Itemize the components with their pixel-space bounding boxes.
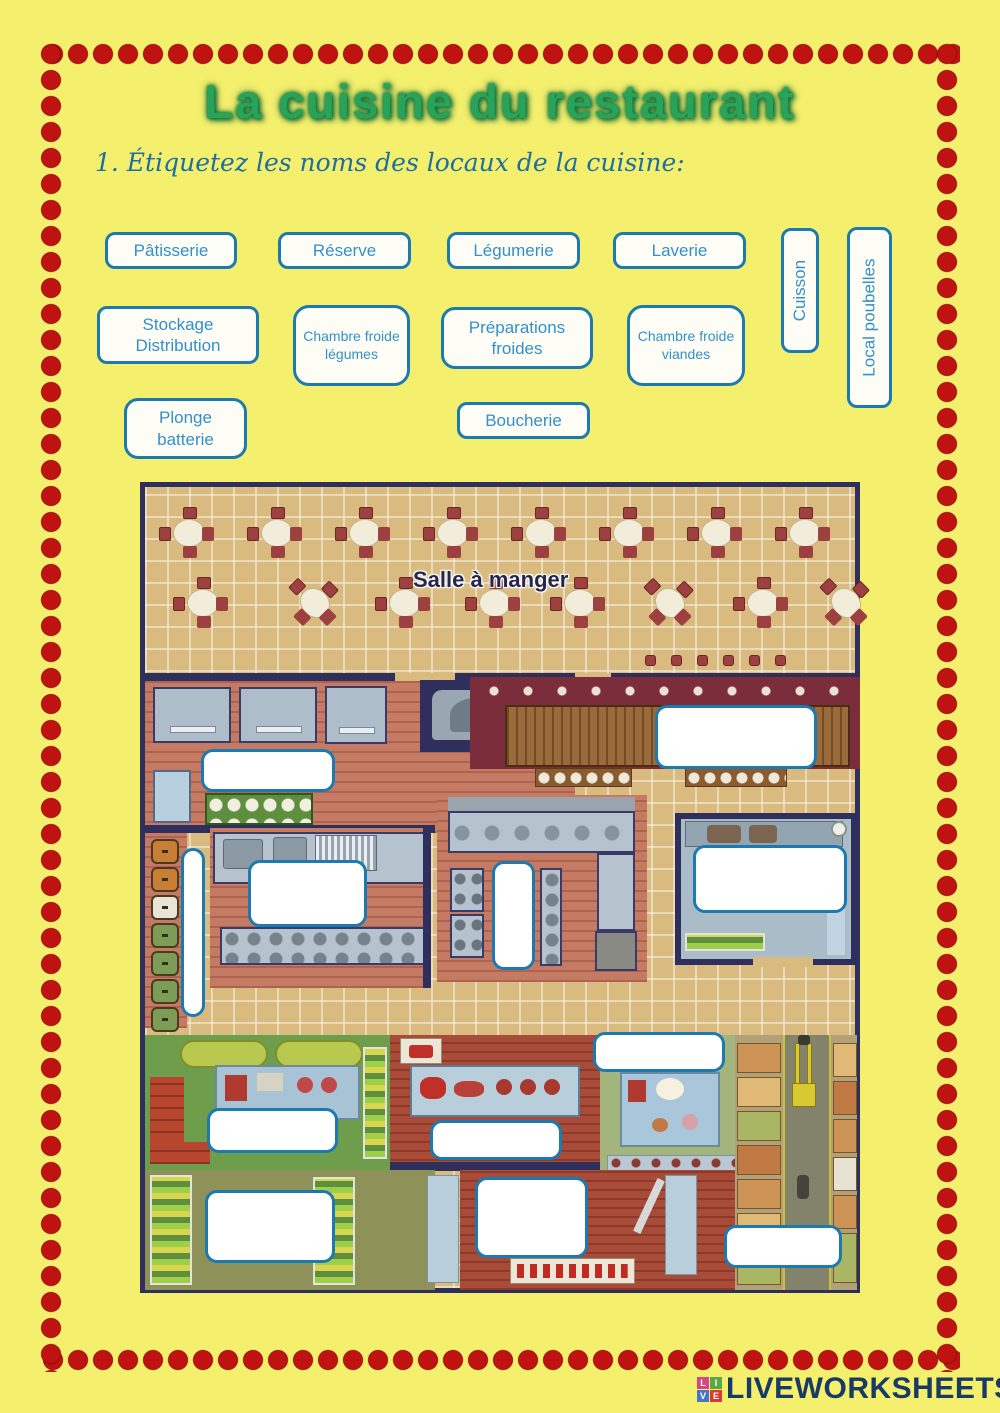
word-bank-laverie[interactable]: Laverie <box>613 232 746 269</box>
appliance <box>151 867 179 892</box>
instruction-text: 1. Étiquetez les noms des locaux de la c… <box>95 148 685 177</box>
counter <box>448 811 635 853</box>
produce-display <box>205 793 313 825</box>
appliance <box>151 951 179 976</box>
wall <box>423 828 431 988</box>
brand-text: LIVEWORKSHEETS <box>726 1372 1000 1406</box>
word-bank-legumerie[interactable]: Légumerie <box>447 232 580 269</box>
dining-table <box>748 590 778 616</box>
hood <box>448 797 635 811</box>
dining-table <box>702 520 732 546</box>
dining-table <box>262 520 292 546</box>
appliance <box>151 979 179 1004</box>
stove <box>450 868 484 912</box>
dining-table <box>350 520 380 546</box>
word-bank-reserve[interactable]: Réserve <box>278 232 411 269</box>
stool <box>671 655 682 666</box>
word-bank-plonge-batterie[interactable]: Plonge batterie <box>124 398 247 459</box>
answer-box-12[interactable] <box>724 1225 842 1268</box>
page-title: La cuisine du restaurant <box>0 74 1000 129</box>
appliance <box>151 1007 179 1032</box>
dining-room-label: Salle à manger <box>413 567 568 593</box>
barrel <box>275 1040 363 1068</box>
dining-table <box>565 590 595 616</box>
appliance <box>151 895 179 920</box>
person <box>797 1175 809 1199</box>
answer-box-10[interactable] <box>205 1190 335 1263</box>
door <box>427 1175 459 1283</box>
crate <box>737 1145 781 1175</box>
dining-table <box>790 520 820 546</box>
equipment-block <box>595 931 637 971</box>
answer-box-7[interactable] <box>593 1032 725 1072</box>
answer-box-9[interactable] <box>430 1120 562 1160</box>
dining-table <box>614 520 644 546</box>
answer-box-6[interactable] <box>693 845 847 913</box>
answer-box-11[interactable] <box>475 1177 588 1258</box>
word-bank-preparations-froides[interactable]: Préparations froides <box>441 307 593 369</box>
crate <box>833 1157 857 1191</box>
pastry-row <box>607 1155 737 1171</box>
answer-box-1[interactable] <box>655 705 817 769</box>
door <box>665 1175 697 1275</box>
appliance <box>151 839 179 864</box>
crate <box>833 1081 857 1115</box>
stool <box>697 655 708 666</box>
word-bank-local-poubelles[interactable]: Local poubelles <box>847 227 892 408</box>
crate <box>833 1119 857 1153</box>
stool <box>775 655 786 666</box>
answer-box-5[interactable] <box>492 861 535 970</box>
green-shelf <box>363 1047 387 1159</box>
prep-counter <box>540 868 562 966</box>
dish-stack <box>535 768 632 787</box>
meat-display-case <box>410 1065 580 1117</box>
answer-box-3[interactable] <box>181 848 205 1017</box>
counter <box>597 853 635 931</box>
barrel <box>180 1040 268 1068</box>
liveworksheets-logo-icon: L I V E <box>697 1377 723 1403</box>
pastry-table <box>620 1072 720 1147</box>
crate <box>737 1077 781 1107</box>
word-bank-cuisson[interactable]: Cuisson <box>781 228 819 353</box>
answer-box-8[interactable] <box>207 1108 338 1153</box>
freezer-unit <box>239 687 317 743</box>
answer-box-2[interactable] <box>201 749 335 792</box>
stool <box>645 655 656 666</box>
sink <box>707 825 741 843</box>
apple-border-left-icon <box>38 40 64 1372</box>
vegetable-rack <box>685 933 765 951</box>
crate <box>737 1043 781 1073</box>
pass-window <box>153 770 191 823</box>
apple-border-top-icon <box>40 40 960 66</box>
word-bank-chambre-froide-legumes[interactable]: Chambre froide légumes <box>293 305 410 386</box>
dish-stack <box>685 768 787 787</box>
stool <box>749 655 760 666</box>
freezer-unit <box>325 686 387 744</box>
crate <box>833 1043 857 1077</box>
appliance <box>151 923 179 948</box>
stool <box>723 655 734 666</box>
dining-table <box>174 520 204 546</box>
dining-table <box>526 520 556 546</box>
door-gap <box>753 957 813 967</box>
dining-table <box>826 583 866 623</box>
apple-border-right-icon <box>934 40 960 1372</box>
sink <box>749 825 777 843</box>
bar-top-items <box>485 683 845 699</box>
freezer-unit <box>153 687 231 743</box>
dining-table <box>188 590 218 616</box>
floor-plan: Salle à manger <box>140 482 860 1293</box>
dining-table <box>438 520 468 546</box>
dining-table <box>295 583 335 623</box>
word-bank-stockage-distribution[interactable]: Stockage Distribution <box>97 306 259 364</box>
crate <box>833 1195 857 1229</box>
crate <box>737 1111 781 1141</box>
produce-rack <box>150 1175 192 1285</box>
stove <box>450 914 484 958</box>
clock-icon <box>831 821 847 837</box>
dining-table <box>390 590 420 616</box>
pot-counter <box>220 927 425 965</box>
word-bank-patisserie[interactable]: Pâtisserie <box>105 232 237 269</box>
apple-border-bottom-icon <box>40 1346 960 1372</box>
worksheet-page: La cuisine du restaurant 1. Étiquetez le… <box>0 0 1000 1413</box>
word-bank-chambre-froide-viandes[interactable]: Chambre froide viandes <box>627 305 745 386</box>
shop-sign <box>510 1258 635 1284</box>
red-crates <box>150 1142 210 1164</box>
word-bank-boucherie[interactable]: Boucherie <box>457 402 590 439</box>
dining-table <box>480 590 510 616</box>
answer-box-4[interactable] <box>248 860 367 927</box>
meat-sign <box>400 1038 442 1064</box>
dining-table <box>650 583 690 623</box>
crate <box>737 1179 781 1209</box>
